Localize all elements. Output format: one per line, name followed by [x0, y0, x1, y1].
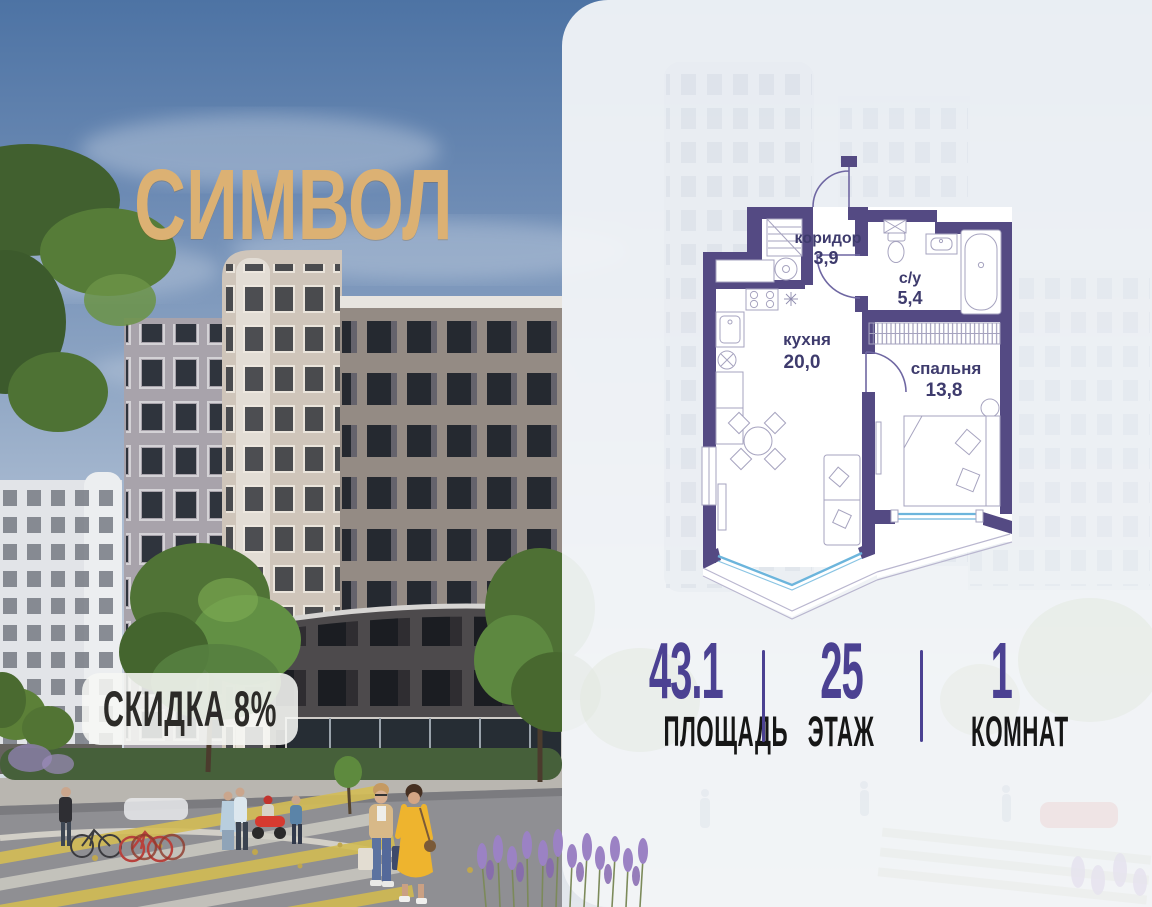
room-name: коридор	[795, 230, 862, 247]
stat-divider	[762, 650, 765, 742]
toilet-icon	[888, 233, 905, 263]
floor-label: ЭТАЖ	[808, 708, 875, 757]
room-name: с/у	[899, 270, 921, 287]
lavender-flowers	[468, 828, 678, 907]
floor-value: 25	[820, 625, 862, 717]
sofa-icon	[824, 455, 860, 545]
stove-icon	[746, 289, 778, 310]
kitchen-sink-icon	[716, 312, 744, 347]
entrance-door-icon	[813, 167, 849, 207]
area-value: 43.1	[649, 625, 723, 717]
hob-icon	[718, 351, 736, 369]
room-area: 20,0	[784, 352, 821, 373]
room-name: кухня	[783, 330, 831, 349]
washing-machine-icon	[775, 258, 797, 280]
white-car	[124, 798, 188, 820]
discount-badge: СКИДКА 8%	[82, 673, 298, 745]
brand-logo: СИМВОЛ	[72, 148, 418, 263]
fridge-snowflake-icon	[784, 292, 798, 306]
bed-icon	[904, 416, 1000, 506]
floor-plan: коридор 3,9 с/у 5,4 кухня 20,0 спальня 1…	[693, 153, 1018, 633]
stat-area: 43.1 ПЛОЩАДЬ	[606, 638, 766, 757]
discount-badge-label: СКИДКА 8%	[103, 680, 277, 738]
stats-row: 43.1 ПЛОЩАДЬ 25 ЭТАЖ 1 КОМНАТ	[562, 638, 1152, 758]
lamp-icon	[981, 399, 999, 417]
room-area: 13,8	[926, 380, 963, 401]
bathroom-sink-icon	[926, 234, 957, 254]
room-name: спальня	[911, 359, 982, 378]
towel-radiator-icon	[884, 220, 906, 233]
wardrobe-icon	[869, 323, 1000, 344]
bathtub-icon	[961, 230, 1001, 314]
rooms-label: КОМНАТ	[971, 708, 1069, 757]
radiator-icon	[718, 484, 726, 530]
room-area: 5,4	[897, 288, 922, 308]
rooms-value: 1	[990, 625, 1011, 717]
tv-icon	[876, 422, 881, 474]
brand-logo-text: СИМВОЛ	[134, 148, 453, 263]
stat-floor: 25 ЭТАЖ	[768, 638, 914, 757]
stat-rooms: 1 КОМНАТ	[926, 638, 1076, 757]
room-area: 3,9	[813, 248, 838, 268]
info-panel: коридор 3,9 с/у 5,4 кухня 20,0 спальня 1…	[562, 0, 1152, 907]
stat-divider	[920, 650, 923, 742]
listing-card: коридор 3,9 с/у 5,4 кухня 20,0 спальня 1…	[0, 0, 1152, 907]
wardrobe-niche-icon	[716, 260, 774, 282]
